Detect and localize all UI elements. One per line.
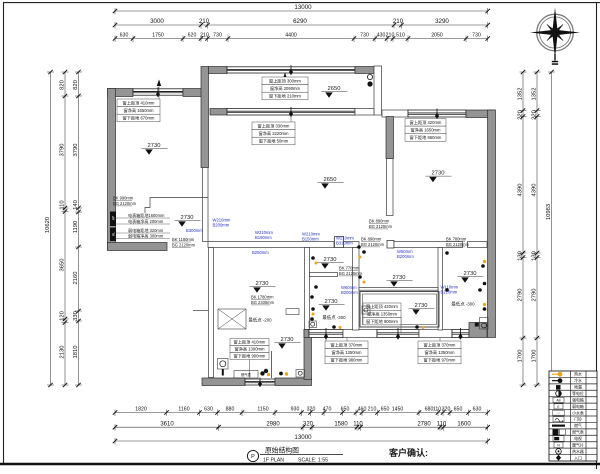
- svg-text:AB: AB: [556, 398, 560, 402]
- svg-text:入口: 入口: [574, 455, 582, 460]
- svg-text:BK 770mm: BK 770mm: [339, 266, 360, 271]
- svg-text:1580: 1580: [334, 421, 348, 427]
- svg-text:燃气表: 燃气表: [572, 430, 584, 435]
- svg-text:BK 990mm: BK 990mm: [113, 196, 134, 201]
- svg-text:1450: 1450: [392, 407, 404, 413]
- svg-text:2730: 2730: [432, 171, 445, 177]
- svg-text:窗净高 1650mm: 窗净高 1650mm: [123, 107, 154, 114]
- svg-text:3650: 3650: [60, 259, 66, 272]
- svg-text:2730: 2730: [256, 281, 269, 287]
- svg-text:BK 1180mm: BK 1180mm: [172, 237, 195, 242]
- svg-text:┄┄: ┄┄: [557, 411, 561, 415]
- svg-text:1150: 1150: [257, 407, 268, 413]
- svg-text:等电位: 等电位: [572, 391, 584, 396]
- svg-text:最低点 -300: 最低点 -300: [451, 301, 475, 308]
- svg-text:2650: 2650: [324, 177, 337, 183]
- svg-text:窗上距顶 300mm: 窗上距顶 300mm: [269, 78, 301, 85]
- svg-text:1820: 1820: [135, 407, 147, 413]
- svg-text:B200mm: B200mm: [213, 223, 230, 228]
- svg-text:2050: 2050: [431, 33, 443, 39]
- svg-text:燃气表: 燃气表: [241, 372, 252, 377]
- svg-text:2160: 2160: [73, 272, 79, 285]
- svg-text:P: P: [251, 454, 255, 460]
- svg-text:2780: 2780: [417, 421, 431, 427]
- svg-text:最低点 -200: 最低点 -200: [248, 317, 272, 324]
- svg-text:210: 210: [200, 33, 209, 39]
- svg-text:2730: 2730: [148, 143, 161, 149]
- svg-text:窗下距地 900mm: 窗下距地 900mm: [366, 318, 398, 325]
- svg-text:1352: 1352: [518, 88, 524, 101]
- svg-text:客户确认:: 客户确认:: [388, 447, 428, 458]
- svg-text:2730: 2730: [281, 337, 294, 343]
- svg-text:窗上距顶 330mm: 窗上距顶 330mm: [258, 123, 290, 130]
- svg-text:2730: 2730: [324, 257, 337, 263]
- svg-text:2650: 2650: [328, 86, 341, 92]
- svg-text:B210mm: B210mm: [441, 290, 458, 295]
- svg-text:窗下距地 900mm: 窗下距地 900mm: [234, 352, 266, 359]
- svg-text:3000: 3000: [150, 18, 164, 25]
- svg-text:2790: 2790: [532, 289, 538, 302]
- svg-text:BG 2120mm: BG 2120mm: [361, 242, 385, 247]
- svg-text:3610: 3610: [160, 421, 174, 427]
- svg-text:窗净高 2090mm: 窗净高 2090mm: [270, 85, 301, 92]
- svg-text:1352: 1352: [532, 88, 538, 101]
- svg-text:330: 330: [73, 311, 79, 321]
- svg-text:BG 2120mm: BG 2120mm: [339, 271, 363, 276]
- svg-text:130: 130: [532, 251, 538, 261]
- svg-text:2730: 2730: [415, 303, 428, 309]
- svg-text:2980: 2980: [266, 421, 280, 427]
- svg-text:730: 730: [213, 33, 222, 39]
- svg-text:4400: 4400: [285, 33, 297, 39]
- svg-text:SCALE: 1:55: SCALE: 1:55: [298, 458, 328, 464]
- svg-text:E: E: [557, 405, 559, 409]
- svg-text:小水表: 小水表: [572, 410, 584, 415]
- svg-text:10983: 10983: [546, 204, 552, 220]
- svg-text:210: 210: [199, 18, 210, 25]
- svg-text:1700: 1700: [518, 350, 524, 363]
- svg-text:BG 2120mm: BG 2120mm: [113, 201, 137, 206]
- svg-text:1810: 1810: [73, 346, 79, 359]
- svg-text:110: 110: [60, 200, 66, 209]
- svg-text:窗上距顶 370mm: 窗上距顶 370mm: [331, 342, 363, 349]
- svg-text:AP: AP: [112, 216, 116, 220]
- svg-text:强电箱: 强电箱: [572, 397, 584, 402]
- svg-text:4390: 4390: [532, 184, 538, 197]
- svg-text:2730: 2730: [393, 275, 406, 281]
- svg-text:窗下距地 670mm: 窗下距地 670mm: [123, 115, 155, 122]
- svg-text:1190: 1190: [73, 221, 79, 233]
- svg-text:B150mm: B150mm: [302, 237, 319, 242]
- svg-text:820: 820: [60, 80, 66, 90]
- svg-text:2790: 2790: [518, 289, 524, 302]
- svg-text:3790: 3790: [73, 144, 79, 157]
- svg-text:880: 880: [226, 407, 235, 413]
- svg-text:820: 820: [73, 80, 79, 90]
- svg-text:原始结构图: 原始结构图: [265, 446, 299, 455]
- svg-text:窗上距顶 420mm: 窗上距顶 420mm: [366, 303, 398, 310]
- svg-text:2730: 2730: [181, 215, 194, 221]
- svg-text:630: 630: [473, 407, 482, 413]
- svg-text:210: 210: [386, 33, 395, 39]
- svg-text:窗下距地 210mm: 窗下距地 210mm: [269, 93, 301, 100]
- svg-text:窗下距地 660mm: 窗下距地 660mm: [410, 134, 442, 141]
- svg-text:140: 140: [73, 200, 79, 210]
- svg-text:电表箱距地1600mm: 电表箱距地1600mm: [128, 212, 165, 218]
- svg-text:窗上距顶 420mm: 窗上距顶 420mm: [410, 119, 442, 126]
- svg-text:BG 2120mm: BG 2120mm: [369, 224, 393, 229]
- svg-text:110: 110: [433, 407, 441, 413]
- svg-text:4390: 4390: [518, 184, 524, 197]
- svg-text:1160: 1160: [178, 407, 189, 413]
- svg-text:窗上距顶 370mm: 窗上距顶 370mm: [424, 342, 456, 349]
- svg-text:BG 2330mm: BG 2330mm: [251, 300, 275, 305]
- svg-text:210: 210: [368, 407, 377, 413]
- svg-text:热水器: 热水器: [572, 449, 584, 454]
- svg-text:冷水: 冷水: [574, 378, 582, 383]
- svg-text:2730: 2730: [464, 271, 477, 277]
- svg-text:3290: 3290: [435, 18, 449, 25]
- svg-text:13000: 13000: [294, 4, 312, 11]
- svg-text:B250mm: B250mm: [252, 250, 269, 255]
- svg-text:510: 510: [396, 33, 405, 39]
- svg-text:最低点 -300: 最低点 -300: [322, 314, 346, 321]
- svg-text:470: 470: [323, 407, 332, 413]
- svg-text:窗净高 1300mm: 窗净高 1300mm: [234, 345, 265, 352]
- svg-text:窗净高 1350mm: 窗净高 1350mm: [331, 349, 362, 356]
- svg-text:2130: 2130: [60, 346, 66, 359]
- svg-text:10620: 10620: [45, 217, 51, 233]
- svg-text:BG 2120mm: BG 2120mm: [172, 242, 196, 247]
- svg-text:650: 650: [381, 407, 390, 413]
- svg-text:320: 320: [307, 407, 316, 413]
- svg-text:1F PLAN: 1F PLAN: [263, 458, 284, 464]
- svg-text:B310mm: B310mm: [336, 241, 353, 246]
- svg-text:热水: 热水: [574, 372, 582, 377]
- svg-text:630: 630: [204, 407, 213, 413]
- svg-text:650: 650: [454, 407, 463, 413]
- svg-text:110: 110: [353, 421, 363, 427]
- svg-text:弱电箱距地 320mm: 弱电箱距地 320mm: [128, 227, 164, 233]
- svg-text:B200mm: B200mm: [397, 254, 414, 259]
- svg-text:320: 320: [442, 407, 451, 413]
- svg-text:B190mm: B190mm: [255, 235, 272, 240]
- svg-text:650: 650: [341, 407, 350, 413]
- svg-text:BG 2120mm: BG 2120mm: [446, 242, 470, 247]
- svg-text:地漏: 地漏: [574, 385, 582, 390]
- svg-text:电表箱净高 200mm: 电表箱净高 200mm: [128, 218, 164, 224]
- svg-text:120: 120: [60, 311, 66, 321]
- svg-text:窗下距地 980mm: 窗下距地 980mm: [331, 357, 363, 364]
- svg-text:窗净高 1350mm: 窗净高 1350mm: [367, 311, 398, 318]
- svg-text:B200mm: B200mm: [341, 290, 358, 295]
- svg-text:13000: 13000: [294, 434, 312, 441]
- svg-text:门铃: 门铃: [574, 417, 582, 422]
- svg-text:930: 930: [291, 407, 300, 413]
- svg-text:1600: 1600: [457, 421, 471, 427]
- svg-text:460: 460: [358, 407, 367, 413]
- svg-text:窗净高 1350mm: 窗净高 1350mm: [424, 349, 455, 356]
- svg-text:窗净高 1650mm: 窗净高 1650mm: [410, 127, 441, 134]
- svg-text:弱电箱净高 300mm: 弱电箱净高 300mm: [128, 233, 164, 239]
- svg-text:AL: AL: [112, 232, 116, 236]
- svg-text:BK 780mm: BK 780mm: [446, 237, 467, 242]
- svg-text:730: 730: [360, 33, 369, 39]
- svg-text:730: 730: [472, 33, 481, 39]
- svg-text:窗下距地 970mm: 窗下距地 970mm: [424, 357, 456, 364]
- svg-text:220: 220: [518, 110, 524, 120]
- svg-text:110: 110: [437, 421, 447, 427]
- svg-text:电视: 电视: [574, 436, 582, 441]
- svg-text:窗上距顶 410mm: 窗上距顶 410mm: [234, 338, 266, 345]
- svg-text:BK 890mm: BK 890mm: [369, 219, 390, 224]
- svg-text:3790: 3790: [60, 144, 66, 157]
- svg-text:窗净高 2220mm: 窗净高 2220mm: [258, 130, 289, 137]
- svg-text:燃气: 燃气: [574, 423, 582, 428]
- svg-text:1700: 1700: [532, 350, 538, 363]
- svg-text:130: 130: [518, 251, 524, 261]
- svg-text:窗下距地 50mm: 窗下距地 50mm: [259, 138, 289, 145]
- svg-text:220: 220: [532, 110, 538, 120]
- svg-text:210: 210: [393, 18, 404, 25]
- svg-text:弱电箱: 弱电箱: [572, 404, 584, 409]
- svg-text:窗上距顶 410mm: 窗上距顶 410mm: [123, 100, 155, 107]
- svg-text:2730: 2730: [325, 299, 338, 305]
- svg-text:620: 620: [188, 33, 197, 39]
- svg-text:B300mm: B300mm: [186, 228, 203, 233]
- svg-text:BK 1780mm: BK 1780mm: [251, 295, 274, 300]
- svg-text:6290: 6290: [293, 18, 307, 25]
- svg-text:BK 890mm: BK 890mm: [361, 237, 382, 242]
- svg-text:430: 430: [377, 33, 386, 39]
- svg-text:1750: 1750: [152, 33, 164, 39]
- svg-text:630: 630: [120, 33, 129, 39]
- svg-text:暖气片: 暖气片: [572, 442, 584, 447]
- svg-text:320: 320: [303, 421, 314, 427]
